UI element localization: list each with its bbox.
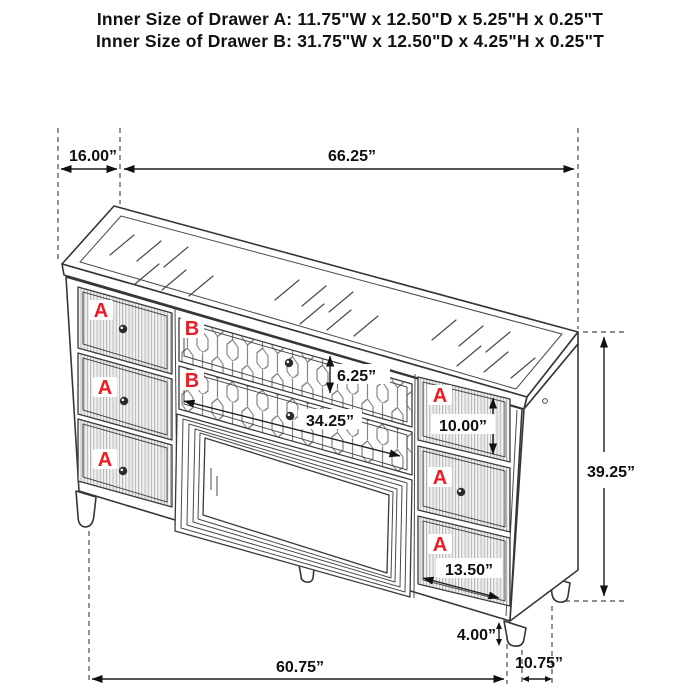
label-drawer-a: A [428,467,452,489]
drawer-knob [119,325,127,333]
dim-top-depth-label: 16.00” [69,148,117,165]
dim-drawer-b-height-label: 6.25” [337,368,376,385]
dim-right-drawer-width-label: 13.50” [445,562,493,579]
drawer-a-inner-size-text: Inner Size of Drawer A: 11.75"W x 12.50"… [0,8,700,30]
drawer-b-inner-size-text: Inner Size of Drawer B: 31.75"W x 12.50"… [0,30,700,52]
drawer-a-letter: A [98,377,112,399]
drawer-a-letter: A [98,449,112,471]
dim-leg-height: 4.00” [457,622,502,646]
label-drawer-a: A [93,449,117,471]
dim-leg-height-label: 4.00” [457,627,496,644]
drawer-a-letter: A [433,467,447,489]
dim-top-depth: 16.00” [61,148,117,169]
label-drawer-a: A [93,377,117,399]
drawer-knob [285,359,293,367]
label-drawer-a: A [428,385,452,407]
label-drawer-b: B [180,370,204,392]
front-left-leg [76,491,96,527]
header: Inner Size of Drawer A: 11.75"W x 12.50"… [0,8,700,52]
dim-drawer-b-width-label: 34.25” [306,413,354,430]
dim-top-width: 66.25” [124,148,574,169]
dim-cabinet-height: 39.25” [587,337,635,596]
drawer-a-letter: A [94,300,108,322]
dim-right-top-drawer-height-label: 10.00” [439,418,487,435]
drawer-b-letter: B [185,370,199,392]
drawer-knob [286,412,294,420]
drawer-a-letter: A [433,534,447,556]
label-drawer-a: A [89,300,113,322]
dresser-line-drawing: A A A B B A A A 16.00” 66.25” [0,0,700,700]
label-drawer-a: A [428,534,452,556]
drawer-knob [119,467,127,475]
furniture-dimension-diagram: Inner Size of Drawer A: 11.75"W x 12.50"… [0,0,700,700]
front-right-leg [504,621,526,646]
dim-front-width: 60.75” [92,659,504,679]
label-drawer-b: B [180,318,204,340]
drawer-b-letter: B [185,318,199,340]
drawer-knob [457,488,465,496]
dim-cabinet-height-label: 39.25” [587,464,635,481]
dim-front-width-label: 60.75” [276,659,324,676]
drawer-knob [120,397,128,405]
dim-side-depth-label: 10.75” [515,655,563,672]
drawer-a-letter: A [433,385,447,407]
dim-top-width-label: 66.25” [328,148,376,165]
